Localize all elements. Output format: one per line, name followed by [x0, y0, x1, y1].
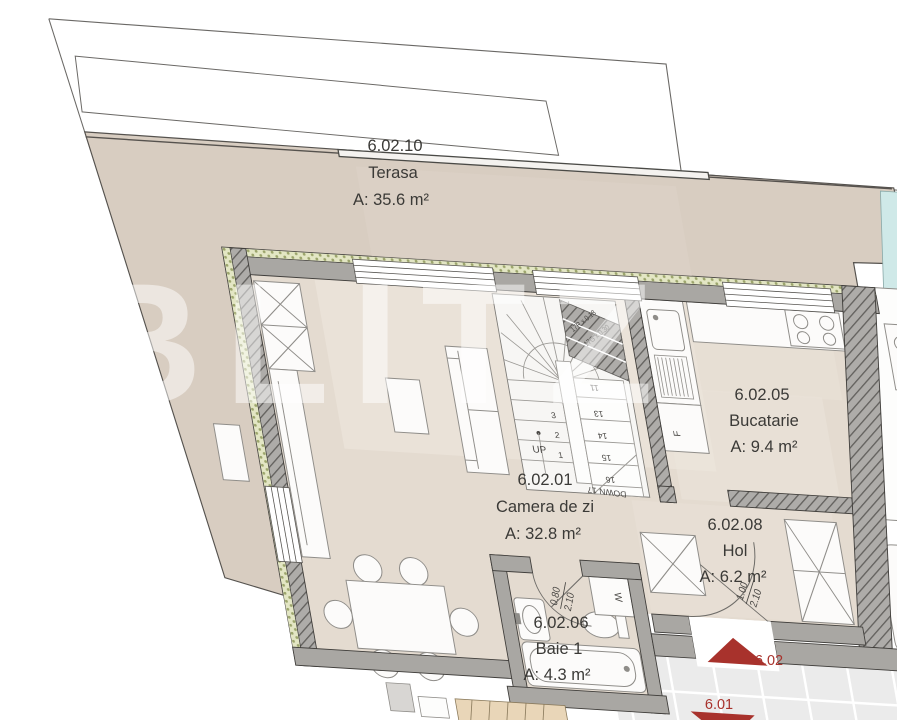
unit-601-label: 6.01: [705, 697, 733, 713]
lower-fixture-2: [418, 696, 450, 718]
wall-baie-top-b: [580, 560, 642, 580]
lower-fixture-1: [386, 683, 415, 712]
fridge-label: F: [672, 430, 684, 437]
camera-code: 6.02.01: [517, 471, 572, 489]
hol-closet-left: [640, 532, 706, 595]
wall-kitchen-hol-a: [658, 486, 677, 503]
label-bucatarie: 6.02.05 Bucatarie A: 9.4 m²: [729, 386, 799, 456]
hol-area: A: 6.2 m²: [700, 568, 767, 586]
wall-hall-a: [651, 634, 696, 659]
stove: [785, 310, 845, 349]
floor-plan-canvas: UP 1 2 3 11 13 14 15 16 DOWN 17 17R x 0.…: [0, 0, 897, 720]
plan-group: UP 1 2 3 11 13 14 15 16 DOWN 17 17R x 0.…: [49, 19, 897, 720]
kitchen-sink: [646, 309, 685, 351]
baie-code: 6.02.06: [533, 614, 588, 632]
washing-machine: [589, 577, 635, 617]
hol-code: 6.02.08: [707, 516, 762, 534]
terasa-code: 6.02.10: [367, 137, 422, 155]
floor-plan-page: UP 1 2 3 11 13 14 15 16 DOWN 17 17R x 0.…: [0, 0, 897, 720]
camera-name: Camera de zi: [496, 498, 594, 516]
bucatarie-name: Bucatarie: [729, 412, 799, 430]
wall-entry-a: [652, 614, 692, 634]
terasa-area: A: 35.6 m²: [353, 191, 430, 209]
baie-name: Baie 1: [536, 640, 583, 658]
baie-area: A: 4.3 m²: [524, 666, 591, 684]
washer-label: W: [611, 592, 624, 603]
camera-area: A: 32.8 m²: [505, 525, 582, 543]
bucatarie-code: 6.02.05: [734, 386, 789, 404]
hol-name: Hol: [723, 542, 748, 560]
terasa-name: Terasa: [368, 164, 418, 182]
wall-baie-top-a: [490, 555, 533, 573]
bucatarie-area: A: 9.4 m²: [731, 438, 798, 456]
stair-up-label: UP: [532, 444, 548, 456]
unit-602-label: 6.02: [755, 653, 783, 669]
